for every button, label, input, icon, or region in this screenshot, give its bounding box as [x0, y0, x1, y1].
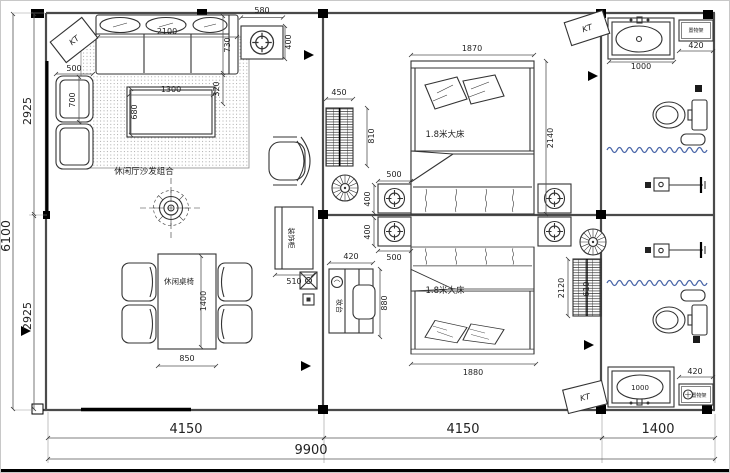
dim-ns2-d: 400 — [363, 224, 372, 239]
fan-bedroom1 — [332, 175, 358, 201]
dim-dresser-l: 880 — [380, 295, 389, 310]
dim-dining-w: 850 — [179, 354, 194, 363]
floor-plan-page: KT KT KT — [0, 0, 730, 473]
page-bottom-bar — [1, 469, 730, 473]
dim-bed1-w: 1870 — [462, 44, 482, 53]
dim-coffee-d: 680 — [130, 104, 139, 119]
dresser-label: 妆台 — [335, 299, 344, 313]
shower-curtain-bottom — [607, 281, 707, 286]
toilet-top — [653, 100, 707, 130]
dim-bottom-c: 1400 — [641, 422, 674, 437]
drain-bottom — [693, 336, 700, 343]
dim-vanity1-w: 1000 — [631, 62, 651, 71]
dim-bed1-l: 2140 — [546, 128, 555, 148]
dim-side-table-d: 400 — [284, 34, 293, 49]
fan-bedroom2 — [580, 229, 606, 255]
dim-left-total: 6100 — [1, 220, 13, 252]
dim-cab-d: 810 — [367, 128, 376, 143]
ceiling-light — [140, 178, 202, 241]
nightstand-b1-right — [538, 184, 571, 213]
shower-head-bottom — [645, 242, 705, 258]
dim-deco-w: 510 — [286, 277, 301, 286]
coffee-table — [127, 87, 215, 137]
switch-symbols — [300, 272, 317, 305]
dim-left-lower: 2925 — [21, 302, 34, 330]
rack-top-label: 置物架 — [688, 27, 703, 34]
bed-top-label: 1.8米大床 — [425, 129, 465, 140]
dim-cab-w: 450 — [331, 88, 346, 97]
dim-coffee-w: 1300 — [161, 85, 181, 94]
deco-cabinet-label: 装饰柜 — [287, 228, 296, 249]
dining-set — [122, 254, 252, 349]
desk-chair — [269, 137, 310, 185]
dim-sofa-offset: 320 — [212, 81, 221, 96]
dim-ns1-d: 400 — [363, 191, 372, 206]
dim-ns1-w: 500 — [386, 170, 401, 179]
sofa-area-label: 休闲厅沙发组合 — [114, 166, 174, 177]
wardrobe-top — [326, 108, 353, 166]
dim-left-upper: 2925 — [21, 97, 34, 125]
dim-side-table-w: 580 — [254, 6, 269, 15]
sofa — [96, 15, 238, 74]
bed-bottom-label: 1.8米大床 — [425, 285, 465, 296]
dim-bottom-total: 9900 — [294, 443, 327, 458]
ac-unit-2: KT — [564, 10, 609, 45]
dim-vanity2-w: 1000 — [631, 384, 649, 392]
dim-armchair-d: 700 — [68, 92, 77, 107]
dim-bottom-b: 4150 — [446, 422, 479, 437]
bed-bottom — [411, 247, 534, 354]
nightstand-b2-left — [378, 217, 411, 246]
bin-bottom — [681, 290, 705, 301]
dim-sofa-w: 2100 — [157, 27, 177, 36]
dim-dining-l: 1400 — [199, 291, 208, 311]
dim-armchair-w: 500 — [66, 64, 81, 73]
dim-rack2-w: 420 — [687, 367, 702, 376]
dim-sofa-d: 730 — [223, 37, 232, 52]
dim-bed2-w: 1880 — [463, 368, 483, 377]
bin-top — [681, 134, 705, 145]
dim-dresser-w: 420 — [343, 252, 358, 261]
dim-bottom-a: 4150 — [169, 422, 202, 437]
dim-rack1-w: 420 — [688, 41, 703, 50]
dim-ward-l: 2120 — [557, 278, 566, 298]
shower-head-top — [645, 177, 705, 193]
toilet-bottom — [653, 305, 707, 335]
drain-top — [695, 85, 702, 92]
dining-set-label: 休闲桌椅 — [164, 276, 194, 286]
side-table — [241, 26, 283, 59]
vanity-top — [608, 17, 674, 59]
shower-curtain-top — [607, 148, 707, 153]
armchair-bottom — [56, 124, 93, 169]
nightstand-b2-right — [538, 217, 571, 246]
nightstand-b1-left — [378, 184, 411, 213]
floor-plan-canvas: KT KT KT — [1, 1, 730, 473]
rack-bottom-label: 置物架 — [691, 392, 706, 399]
dim-ns2-w: 500 — [386, 253, 401, 262]
dim-ward-w: 610 — [582, 281, 591, 296]
